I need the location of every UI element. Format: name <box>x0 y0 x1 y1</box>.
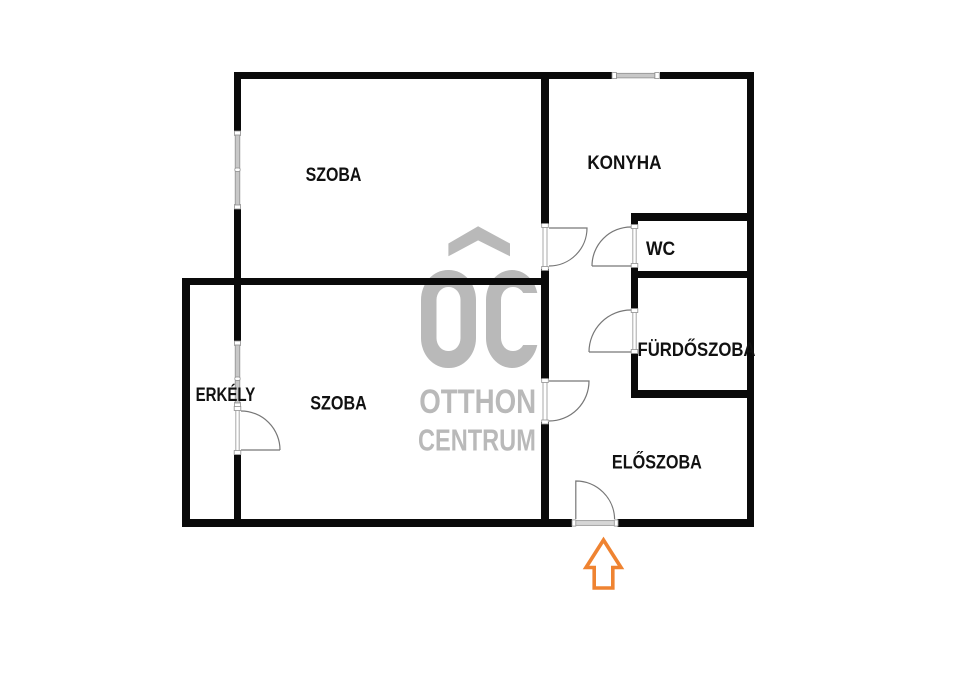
svg-text:OTTHON: OTTHON <box>419 382 536 420</box>
svg-text:SZOBA: SZOBA <box>306 164 362 186</box>
svg-text:SZOBA: SZOBA <box>310 392 367 414</box>
svg-text:ELŐSZOBA: ELŐSZOBA <box>612 450 702 473</box>
svg-text:KONYHA: KONYHA <box>587 152 661 173</box>
svg-text:WC: WC <box>646 237 675 259</box>
svg-text:FÜRDŐSZOBA: FÜRDŐSZOBA <box>637 338 755 360</box>
svg-text:ERKÉLY: ERKÉLY <box>196 383 256 405</box>
svg-text:CENTRUM: CENTRUM <box>418 422 536 457</box>
